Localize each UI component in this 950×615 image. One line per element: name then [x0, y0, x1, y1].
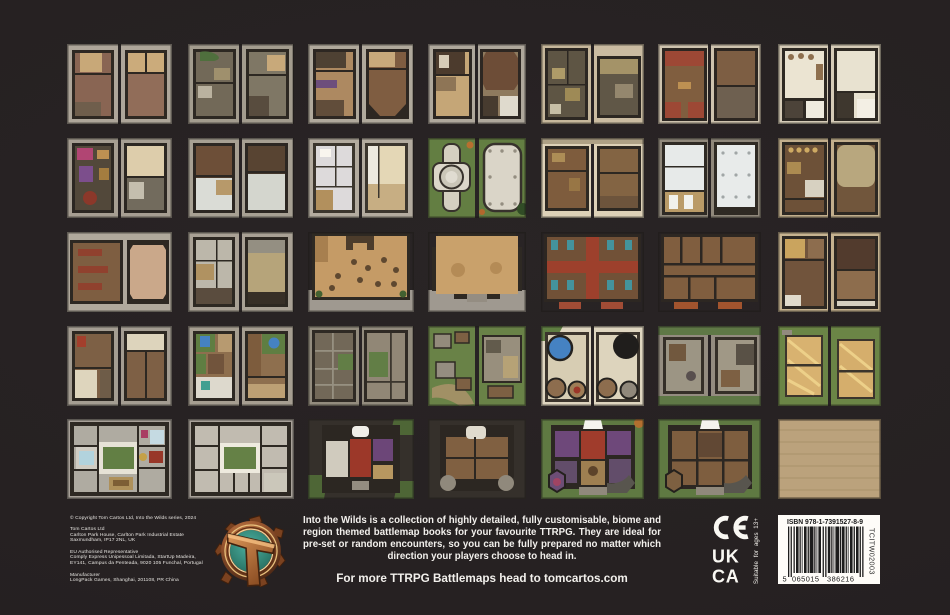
svg-text:TCITW02003: TCITW02003 [868, 528, 877, 575]
svg-text:386216: 386216 [827, 575, 854, 584]
svg-text:UK: UK [712, 547, 740, 567]
svg-text:065015: 065015 [792, 575, 819, 584]
svg-text:5: 5 [783, 575, 787, 584]
svg-text:CA: CA [712, 567, 740, 587]
svg-text:ISBN 978-1-7391527-8-9: ISBN 978-1-7391527-8-9 [787, 519, 863, 526]
